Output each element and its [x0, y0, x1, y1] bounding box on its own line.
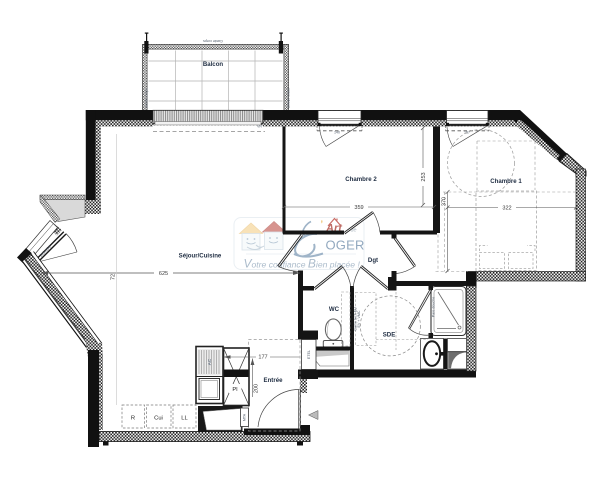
svg-text:625: 625 [159, 271, 168, 277]
svg-text:SDE: SDE [383, 332, 396, 339]
svg-text:AC: AC [207, 358, 212, 365]
svg-text:WC: WC [329, 306, 340, 313]
svg-text:Chambre 2: Chambre 2 [345, 176, 377, 183]
svg-text:177: 177 [258, 355, 267, 361]
svg-text:Séjour/Cuisine: Séjour/Cuisine [179, 253, 222, 260]
svg-text:Garde corps: Garde corps [287, 88, 291, 108]
svg-text:Votre confiance Bien placée !: Votre confiance Bien placée ! [244, 257, 361, 271]
svg-text:322: 322 [502, 206, 511, 212]
svg-text:VR: VR [257, 125, 262, 129]
svg-text:Cui: Cui [154, 416, 163, 422]
svg-text:ETEL: ETEL [307, 350, 311, 359]
svg-text:Pare douche: Pare douche [432, 297, 436, 317]
svg-text:’: ’ [321, 219, 324, 229]
svg-text:72: 72 [111, 274, 117, 280]
svg-text:Pl: Pl [232, 387, 237, 393]
svg-text:Balcon: Balcon [203, 61, 224, 68]
svg-text:Chambre 1: Chambre 1 [490, 178, 522, 185]
svg-text:Dgt: Dgt [368, 257, 378, 264]
svg-text:370: 370 [442, 197, 448, 206]
svg-text:Garde corps: Garde corps [203, 39, 223, 43]
svg-text:253: 253 [421, 172, 427, 181]
svg-text:200: 200 [254, 384, 260, 393]
svg-text:de: de [351, 228, 357, 234]
svg-text:MTA: MTA [243, 413, 247, 421]
svg-text:LL: LL [181, 416, 188, 422]
svg-text:OGER: OGER [326, 238, 365, 253]
svg-text:Entrée: Entrée [264, 377, 284, 384]
svg-text:R: R [131, 416, 135, 422]
svg-text:140: 140 [334, 131, 340, 135]
svg-text:359: 359 [354, 205, 363, 211]
svg-text:Garde corps: Garde corps [145, 88, 149, 108]
